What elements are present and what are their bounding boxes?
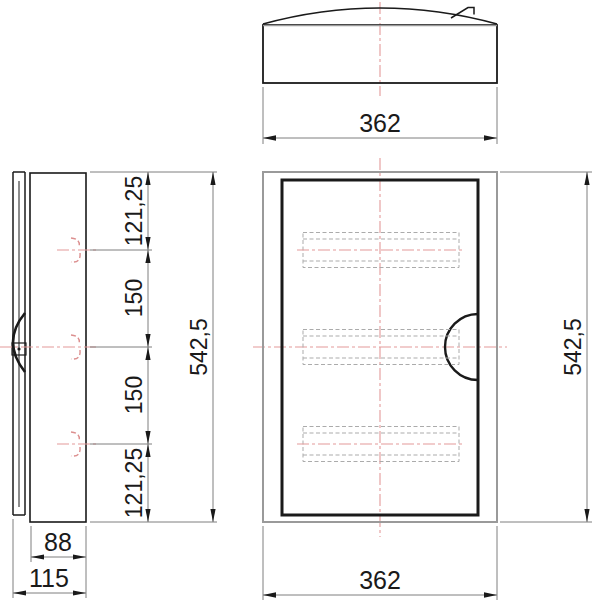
arrowhead [73, 554, 86, 559]
segment-label-2: 150 [121, 279, 147, 317]
depth-inner-label: 88 [44, 528, 72, 556]
side-lock-pin [17, 347, 20, 350]
arrowhead [210, 509, 215, 522]
front-height-label: 542,5 [560, 318, 586, 376]
segment-label-4: 121,25 [121, 448, 147, 518]
segment-label-3: 150 [121, 376, 147, 414]
side-height-dimension: 542,5 [186, 172, 216, 522]
bracket-hook-icon [71, 447, 80, 456]
arrowhead [145, 334, 150, 347]
bracket-hook-icon [71, 335, 79, 344]
bracket-hook-icon [71, 350, 80, 359]
arrowhead-left [263, 135, 276, 140]
arrowhead [263, 592, 276, 597]
module-row-bottom [297, 427, 465, 462]
arrowhead [210, 172, 215, 185]
segment-label-1: 121,25 [121, 176, 147, 246]
side-height-label: 542,5 [186, 318, 212, 376]
engineering-drawing-canvas: 362 [0, 0, 600, 600]
side-view: 121,25 150 150 121,25 542,5 88 115 [0, 172, 217, 598]
top-width-label: 362 [359, 109, 401, 137]
bracket-hook-icon [71, 238, 79, 247]
top-view: 362 [263, 2, 497, 144]
arrowhead [145, 431, 150, 444]
bracket-hook-icon [71, 432, 79, 441]
depth-total-label: 115 [29, 564, 69, 592]
arrowhead [145, 347, 150, 360]
arrowhead [584, 172, 589, 185]
front-view: 542,5 362 [253, 158, 592, 600]
arrowhead-right [484, 135, 497, 140]
depth-dimensions: 88 115 [13, 519, 86, 598]
arrowhead [145, 250, 150, 263]
module-row-top [297, 233, 465, 268]
front-width-label: 362 [359, 566, 401, 594]
arrowhead [31, 554, 44, 559]
front-width-dimension: 362 [263, 526, 497, 600]
arrowhead [484, 592, 497, 597]
arrowhead [584, 509, 589, 522]
arrowhead [73, 590, 86, 595]
arrowhead [13, 590, 26, 595]
front-height-dimension: 542,5 [500, 172, 592, 522]
bracket-hook-icon [71, 253, 80, 262]
